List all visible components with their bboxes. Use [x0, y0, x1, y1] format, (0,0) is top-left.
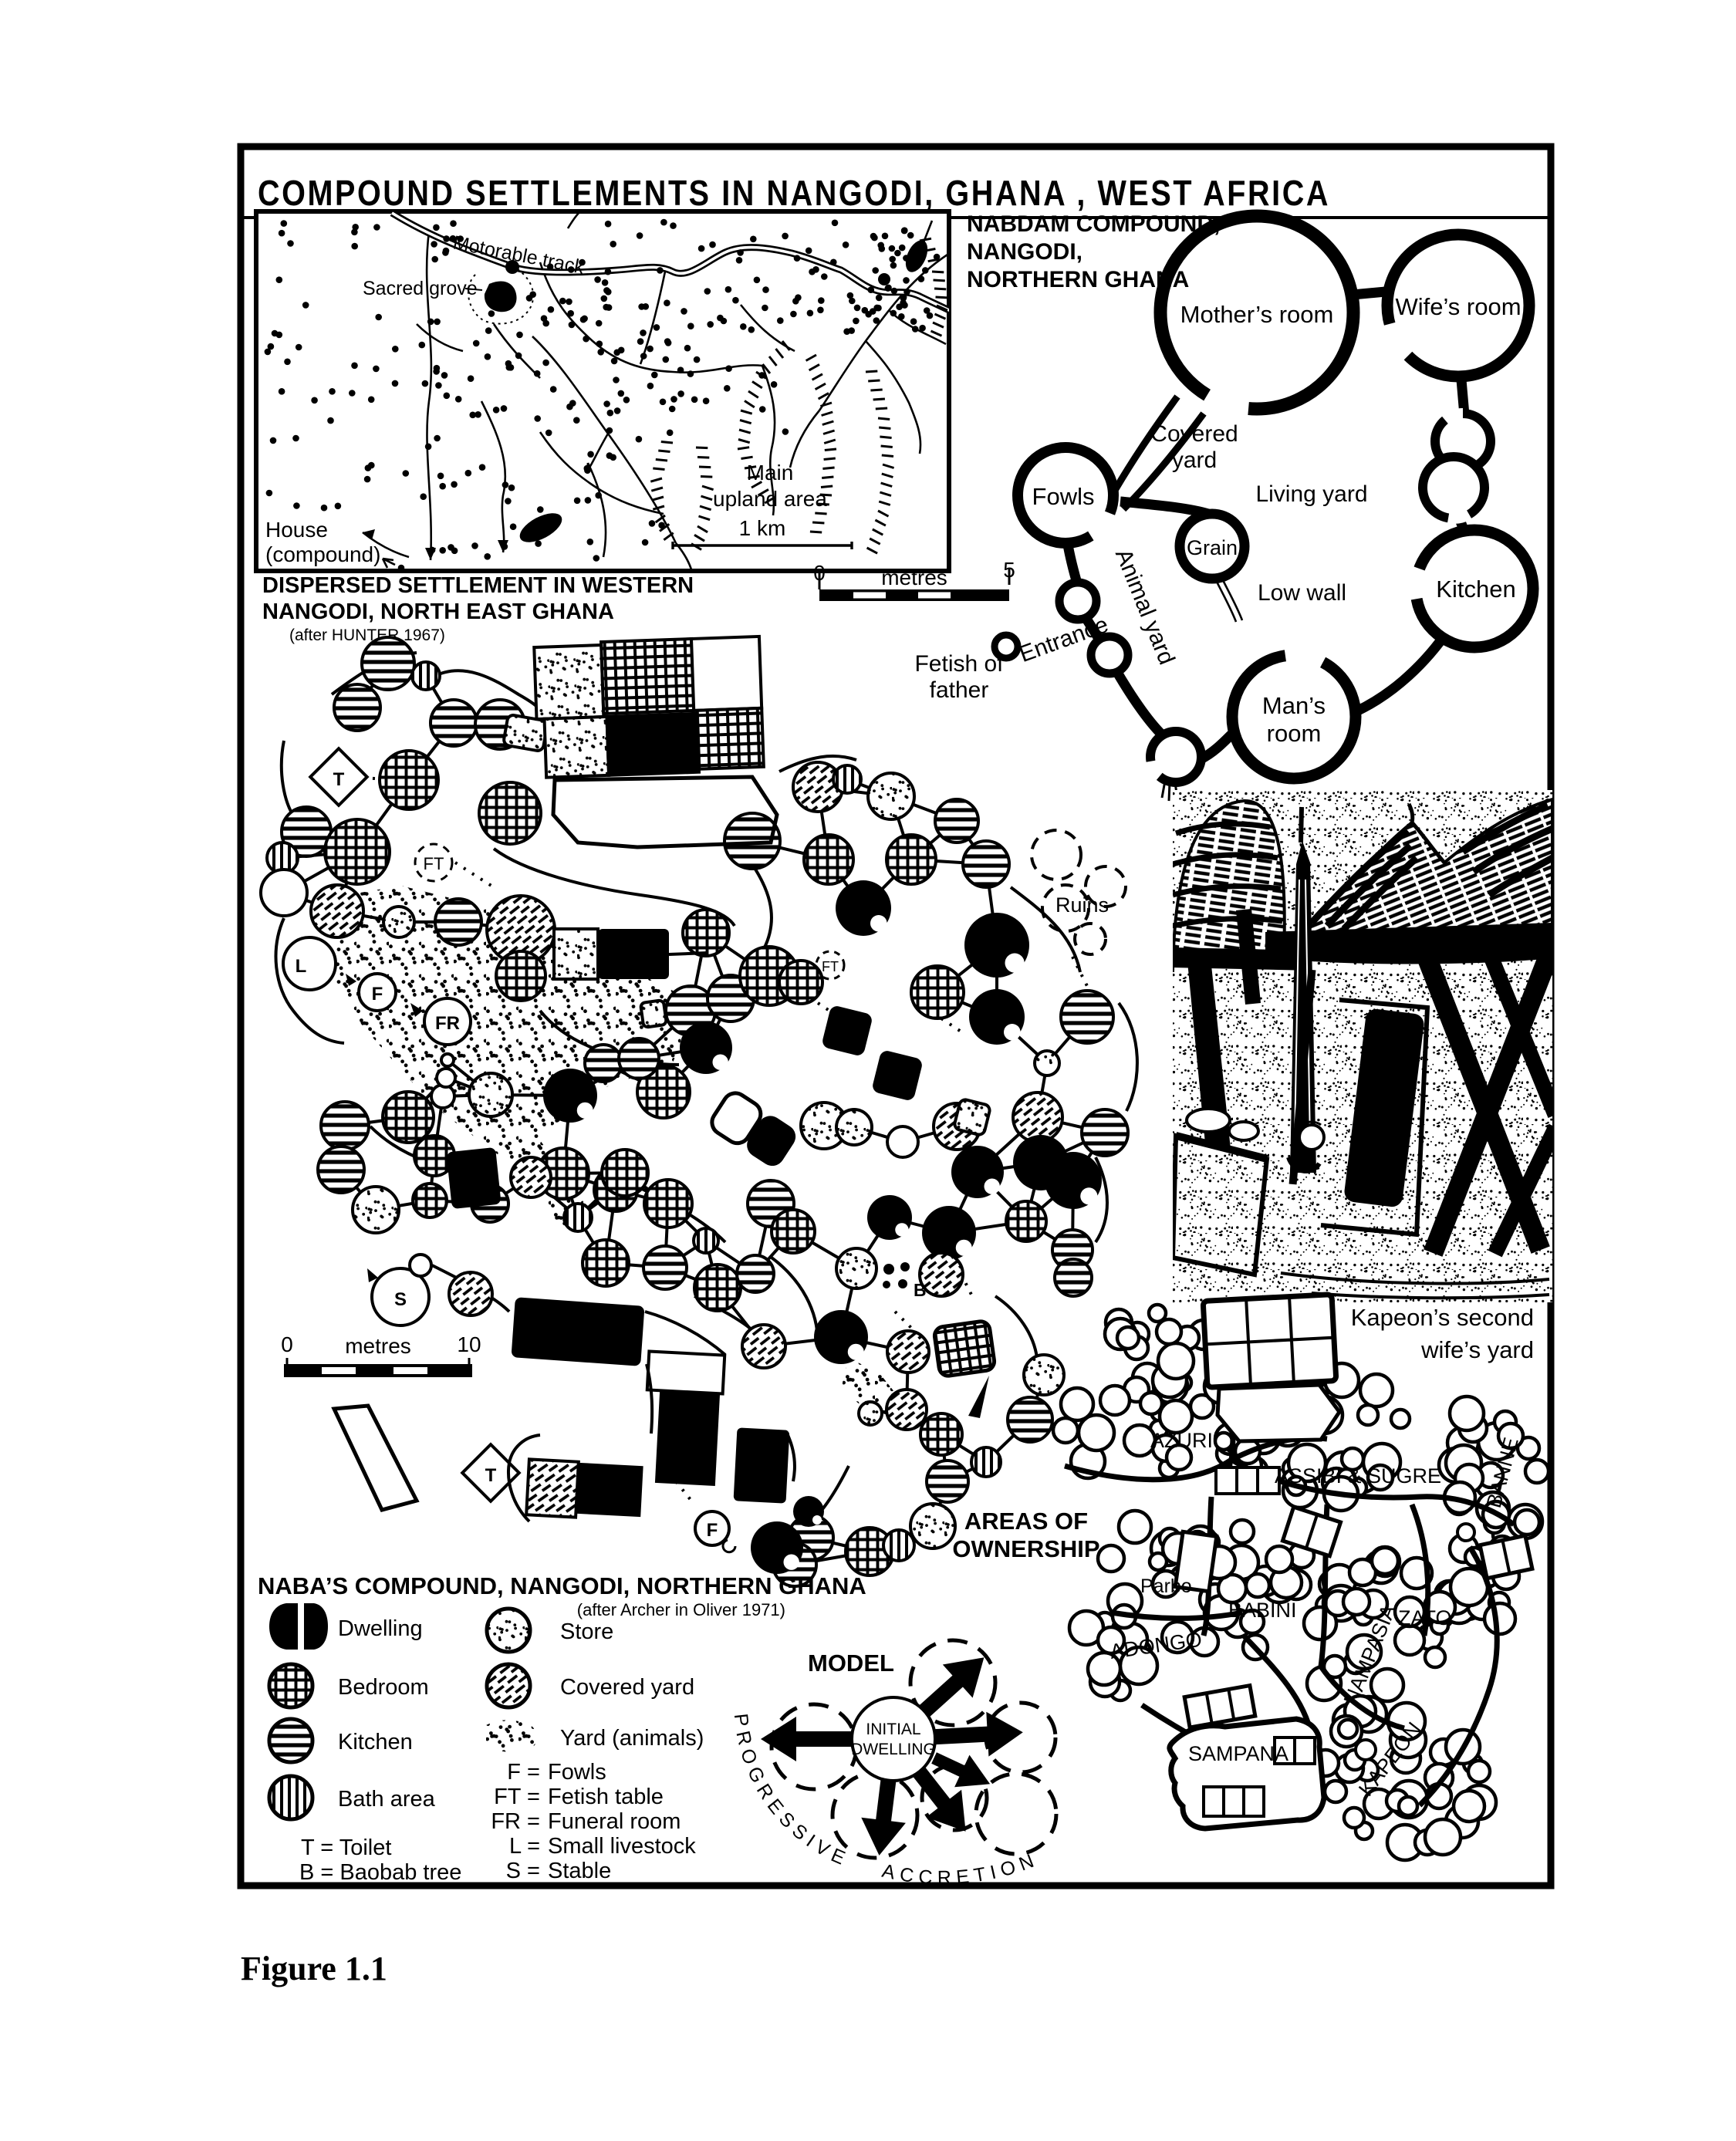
svg-text:yard: yard	[1172, 447, 1217, 473]
svg-text:Living yard: Living yard	[1255, 481, 1367, 507]
svg-text:1 km: 1 km	[739, 516, 786, 540]
svg-text:F: F	[707, 1520, 718, 1541]
svg-text:FT =: FT =	[494, 1785, 540, 1809]
svg-text:metres: metres	[345, 1334, 411, 1358]
svg-text:Kitchen: Kitchen	[338, 1730, 413, 1754]
svg-text:S =: S =	[506, 1859, 540, 1883]
svg-text:ASSIBI & SUGRE: ASSIBI & SUGRE	[1275, 1464, 1441, 1488]
svg-text:Store: Store	[560, 1619, 613, 1644]
svg-text:Fowls: Fowls	[548, 1760, 606, 1785]
svg-text:Small livestock: Small livestock	[548, 1834, 696, 1859]
svg-text:Sacred grove: Sacred grove	[363, 278, 478, 299]
svg-text:Kapeon’s second: Kapeon’s second	[1351, 1304, 1534, 1331]
svg-text:Funeral room: Funeral room	[548, 1809, 681, 1834]
svg-text:Figure 1.1: Figure 1.1	[241, 1950, 387, 1987]
svg-text:ZATO: ZATO	[1398, 1606, 1452, 1629]
svg-text:OWNERSHIP: OWNERSHIP	[952, 1535, 1099, 1562]
svg-text:(compound): (compound)	[265, 542, 380, 566]
svg-text:FR =: FR =	[491, 1809, 540, 1834]
svg-text:Stable: Stable	[548, 1859, 611, 1883]
svg-text:upland area: upland area	[713, 487, 827, 511]
svg-text:Bedroom: Bedroom	[338, 1675, 429, 1700]
svg-text:Parbo: Parbo	[1140, 1575, 1192, 1597]
svg-text:NORTHERN GHANA: NORTHERN GHANA	[967, 267, 1189, 292]
svg-text:AREAS OF: AREAS OF	[964, 1508, 1088, 1535]
svg-text:Ruins: Ruins	[1055, 893, 1109, 917]
svg-text:DISPERSED SETTLEMENT IN WESTER: DISPERSED SETTLEMENT IN WESTERN	[262, 573, 694, 598]
svg-text:NABA’S COMPOUND, NANGODI, NORT: NABA’S COMPOUND, NANGODI, NORTHERN GHANA	[258, 1572, 866, 1599]
svg-text:F =: F =	[507, 1760, 540, 1785]
svg-text:COMPOUND SETTLEMENTS IN NANGOD: COMPOUND SETTLEMENTS IN NANGODI, GHANA ,…	[258, 173, 1330, 213]
svg-text:DWELLING: DWELLING	[851, 1741, 936, 1758]
svg-text:(after HUNTER 1967): (after HUNTER 1967)	[289, 626, 445, 644]
svg-text:Low wall: Low wall	[1258, 580, 1346, 606]
svg-text:House: House	[265, 518, 328, 542]
svg-text:(after Archer in Oliver 1971): (after Archer in Oliver 1971)	[577, 1600, 785, 1619]
svg-text:B: B	[914, 1280, 927, 1300]
svg-text:S: S	[394, 1289, 407, 1310]
svg-text:metres: metres	[881, 566, 947, 589]
svg-text:Yard (animals): Yard (animals)	[560, 1726, 704, 1751]
svg-text:F: F	[372, 984, 383, 1005]
svg-text:NANGODI, NORTH EAST GHANA: NANGODI, NORTH EAST GHANA	[262, 599, 614, 624]
svg-text:B = Baobab tree: B = Baobab tree	[299, 1860, 461, 1885]
svg-text:Fetish table: Fetish table	[548, 1785, 664, 1809]
svg-text:0: 0	[281, 1332, 293, 1356]
svg-text:INITIAL: INITIAL	[866, 1721, 920, 1738]
svg-text:BABINI: BABINI	[1228, 1599, 1297, 1622]
svg-text:Mother’s room: Mother’s room	[1180, 301, 1334, 328]
svg-text:SAMPANA: SAMPANA	[1188, 1742, 1288, 1765]
svg-text:Fetish of: Fetish of	[914, 651, 1004, 677]
svg-text:Kitchen: Kitchen	[1436, 576, 1515, 603]
svg-text:Fowls: Fowls	[1032, 483, 1095, 510]
svg-text:Wife’s room: Wife’s room	[1395, 293, 1521, 320]
svg-text:FT: FT	[822, 959, 839, 974]
svg-text:room: room	[1267, 720, 1322, 747]
svg-text:Dwelling: Dwelling	[338, 1616, 423, 1641]
svg-text:T = Toilet: T = Toilet	[301, 1835, 391, 1860]
svg-text:AZURI: AZURI	[1150, 1429, 1213, 1452]
svg-text:T: T	[333, 769, 345, 790]
svg-text:10: 10	[457, 1332, 481, 1356]
svg-text:FR: FR	[435, 1013, 460, 1034]
svg-text:Man’s: Man’s	[1262, 692, 1326, 719]
svg-text:L =: L =	[509, 1834, 540, 1859]
svg-text:L: L	[296, 956, 307, 977]
svg-text:NABDAM COMPOUND,: NABDAM COMPOUND,	[967, 211, 1220, 237]
svg-text:T: T	[485, 1465, 497, 1486]
svg-text:wife’s yard: wife’s yard	[1420, 1336, 1534, 1363]
svg-text:FT: FT	[424, 854, 444, 873]
svg-text:Main: Main	[747, 461, 794, 485]
svg-text:father: father	[930, 677, 989, 703]
svg-text:Covered: Covered	[1150, 421, 1238, 447]
svg-text:Covered yard: Covered yard	[560, 1675, 694, 1700]
svg-text:MODEL: MODEL	[808, 1650, 894, 1677]
svg-text:NANGODI,: NANGODI,	[967, 239, 1082, 265]
svg-text:Grain: Grain	[1187, 536, 1238, 559]
svg-text:Bath area: Bath area	[338, 1787, 436, 1812]
